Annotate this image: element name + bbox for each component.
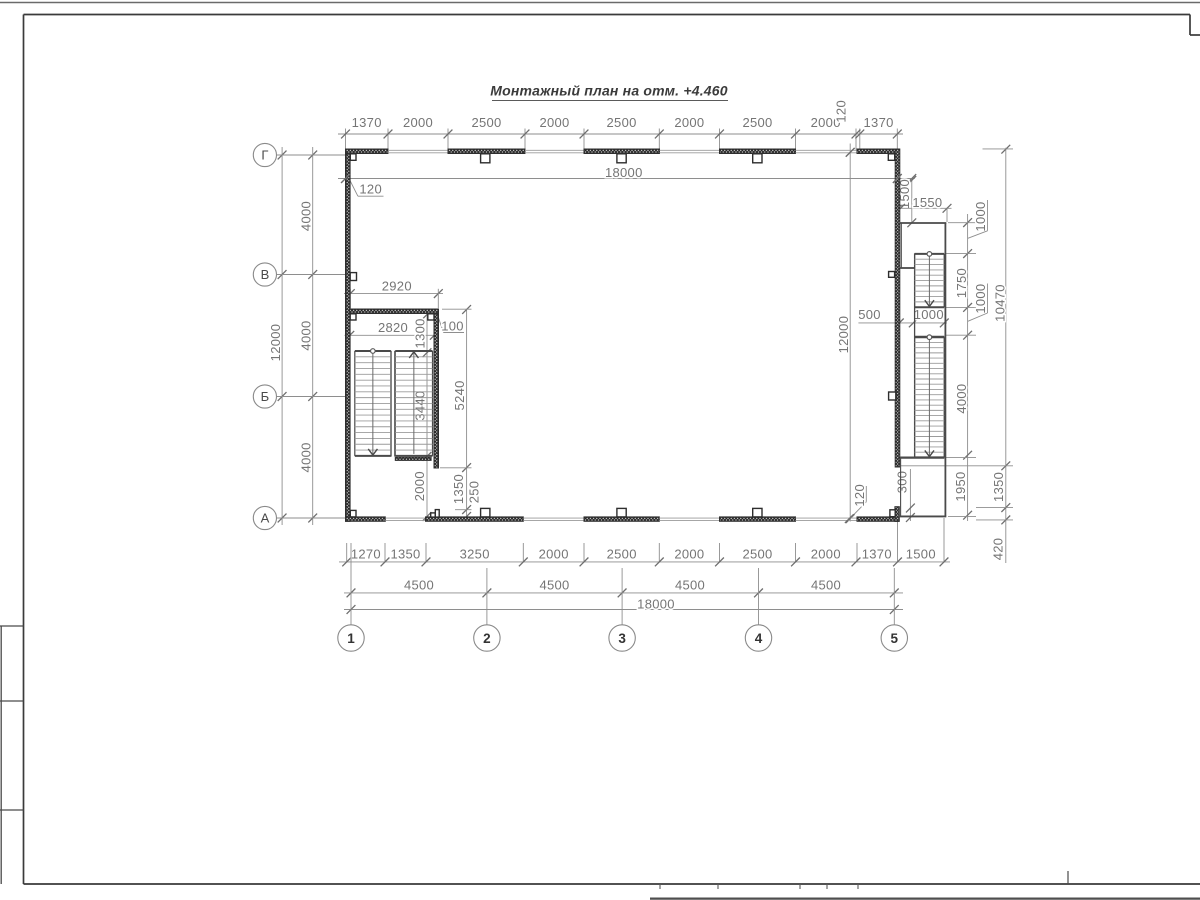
svg-text:4000: 4000 — [299, 442, 314, 472]
svg-text:10470: 10470 — [993, 284, 1008, 322]
svg-text:2500: 2500 — [607, 115, 637, 130]
svg-text:1350: 1350 — [991, 472, 1006, 502]
svg-text:Монтажный план на отм. +4.460: Монтажный план на отм. +4.460 — [490, 83, 728, 99]
svg-text:1370: 1370 — [864, 115, 894, 130]
svg-text:2000: 2000 — [539, 546, 569, 561]
svg-text:2000: 2000 — [539, 115, 569, 130]
svg-text:2: 2 — [483, 631, 491, 646]
svg-text:2500: 2500 — [607, 546, 637, 561]
svg-text:2000: 2000 — [674, 115, 704, 130]
svg-text:120: 120 — [834, 100, 849, 123]
svg-text:2000: 2000 — [811, 546, 841, 561]
svg-text:4000: 4000 — [299, 201, 314, 231]
svg-text:120: 120 — [852, 484, 867, 507]
svg-text:А: А — [261, 511, 270, 526]
svg-text:2820: 2820 — [378, 320, 408, 335]
svg-text:4500: 4500 — [811, 577, 841, 592]
svg-text:2000: 2000 — [674, 546, 704, 561]
svg-text:120: 120 — [359, 182, 382, 197]
svg-text:4500: 4500 — [539, 577, 569, 592]
svg-text:1370: 1370 — [862, 546, 892, 561]
svg-text:420: 420 — [991, 538, 1006, 561]
svg-text:2000: 2000 — [412, 471, 427, 501]
svg-text:Г: Г — [261, 148, 268, 163]
svg-text:Б: Б — [261, 389, 270, 404]
svg-text:12000: 12000 — [268, 324, 283, 362]
svg-text:2920: 2920 — [382, 278, 412, 293]
svg-text:2500: 2500 — [742, 546, 772, 561]
svg-text:5: 5 — [891, 631, 899, 646]
svg-text:1350: 1350 — [390, 546, 420, 561]
svg-text:1: 1 — [347, 631, 355, 646]
svg-text:250: 250 — [467, 481, 482, 504]
svg-text:В: В — [261, 267, 270, 282]
svg-text:18000: 18000 — [637, 596, 675, 611]
svg-text:5240: 5240 — [452, 380, 467, 410]
svg-text:1270: 1270 — [351, 546, 381, 561]
svg-text:4000: 4000 — [954, 384, 969, 414]
svg-text:3: 3 — [618, 631, 626, 646]
svg-text:2500: 2500 — [742, 115, 772, 130]
svg-text:1370: 1370 — [352, 115, 382, 130]
svg-text:3440: 3440 — [413, 391, 428, 421]
svg-text:12000: 12000 — [836, 316, 851, 354]
svg-text:4: 4 — [755, 631, 763, 646]
svg-text:1300: 1300 — [413, 318, 428, 348]
svg-text:1000: 1000 — [973, 284, 988, 314]
svg-text:18000: 18000 — [605, 165, 643, 180]
svg-text:500: 500 — [858, 307, 881, 322]
svg-text:3250: 3250 — [460, 546, 490, 561]
svg-text:1350: 1350 — [451, 474, 466, 504]
svg-text:100: 100 — [441, 318, 464, 333]
svg-text:4500: 4500 — [675, 577, 705, 592]
svg-text:2500: 2500 — [471, 115, 501, 130]
svg-text:300: 300 — [895, 471, 910, 494]
svg-text:1000: 1000 — [973, 201, 988, 231]
svg-text:1750: 1750 — [954, 268, 969, 298]
svg-text:1550: 1550 — [912, 195, 942, 210]
svg-text:2000: 2000 — [403, 115, 433, 130]
svg-text:4000: 4000 — [299, 320, 314, 350]
svg-text:1950: 1950 — [953, 471, 968, 501]
svg-text:1500: 1500 — [906, 546, 936, 561]
svg-text:1000: 1000 — [914, 307, 944, 322]
svg-text:4500: 4500 — [404, 577, 434, 592]
